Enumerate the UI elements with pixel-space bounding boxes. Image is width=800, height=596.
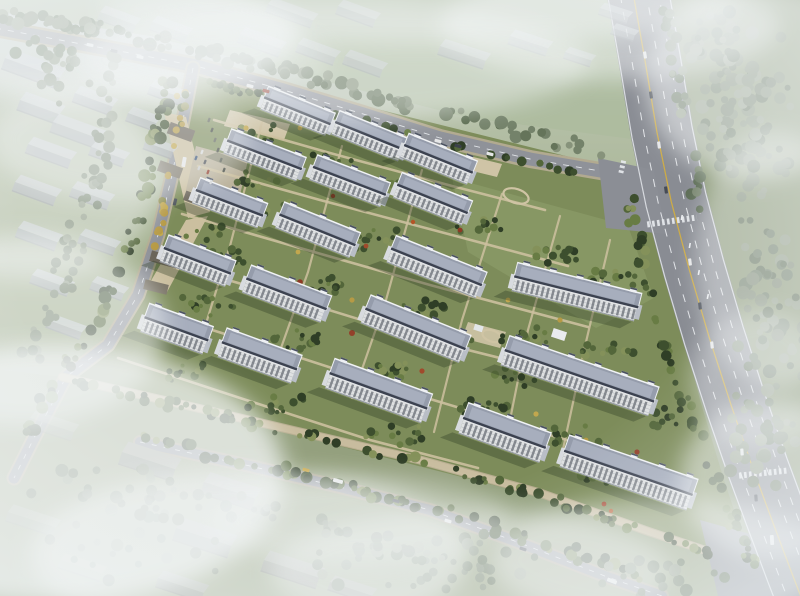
rendering-canvas (0, 0, 800, 596)
aerial-rendering (0, 0, 800, 596)
edge-haze-vignette (0, 0, 800, 596)
